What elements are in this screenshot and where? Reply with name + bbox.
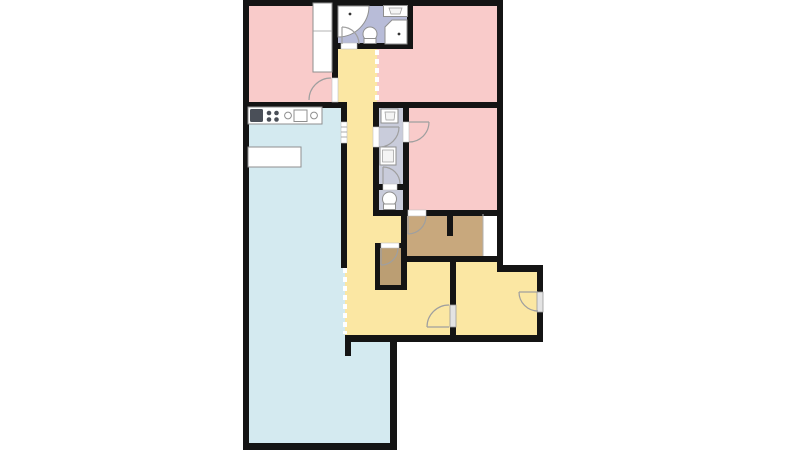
small-closet [378, 246, 403, 287]
wall-hallrooms-divider-a [450, 256, 456, 305]
hob-ring [285, 112, 292, 119]
hallway-top [335, 46, 377, 108]
wall-fin [345, 342, 351, 356]
burner [267, 117, 272, 122]
burner [267, 111, 272, 116]
wall-step-top [497, 265, 543, 272]
corner-shower [385, 20, 407, 44]
wall-closet-partition [447, 210, 453, 236]
kitchen-living-upper [246, 105, 345, 345]
floorplan-svg [0, 0, 800, 450]
hall-room-right-west [453, 260, 501, 342]
door-opening-bedroom [403, 122, 409, 142]
shower-drain-dot [398, 33, 401, 36]
door-opening-bathroom [341, 43, 357, 49]
wall-closet-left-column [401, 210, 407, 290]
bathtub-drain-dot [349, 13, 352, 16]
bathroom-toilet-tank [364, 39, 376, 44]
wall-kitchen-right-b [341, 143, 347, 268]
kitchen-table [248, 147, 301, 167]
wall-top [243, 0, 503, 6]
wall-living-right [390, 342, 397, 443]
door-opening-walk-in-closet [408, 210, 426, 216]
wall-bedroom-bottom-b [426, 210, 503, 216]
wall-bathroom-bottom-a [332, 43, 341, 49]
stove [250, 109, 263, 122]
wc-toilet-tank [384, 204, 396, 210]
wall-mid-right [373, 102, 503, 108]
wall-utility-left-a [373, 108, 379, 127]
wall-right-upper [497, 0, 503, 272]
wall-utility-wc-divider-b [397, 184, 409, 190]
door-opening-utility [373, 127, 379, 147]
burner [274, 117, 279, 122]
wardrobe [313, 3, 332, 72]
wall-small-closet-top-b [399, 243, 406, 248]
floorplan [0, 0, 800, 450]
wall-small-closet-bottom [375, 285, 406, 290]
door-opening-room-top-left [332, 78, 338, 102]
burner [274, 111, 279, 116]
door-slab-entrance [537, 292, 543, 312]
wall-bedroom-left-a [403, 108, 409, 122]
room-top-right-upper [410, 3, 500, 48]
wall-kitchen-right-a [341, 108, 347, 122]
wall-left [243, 0, 249, 450]
bedroom-right [406, 108, 498, 212]
wall-utility-left-b [373, 147, 379, 213]
wall-topleft-room-right [332, 0, 338, 78]
bathroom-sink-basin [389, 8, 402, 14]
hall-room-left [403, 260, 453, 342]
wall-bedroom-left-b [403, 142, 409, 213]
pass-through-kitchen [341, 122, 347, 143]
wall-right-lower-a [537, 272, 543, 292]
kitchen-living-lower [246, 340, 393, 447]
wall-bottom-left [243, 443, 397, 450]
walk-in-closet [403, 212, 483, 257]
wall-hallrooms-bottom [345, 335, 543, 342]
wall-small-closet-left [375, 243, 380, 290]
kitchen-sink [294, 110, 307, 122]
hob-ring [311, 112, 318, 119]
door-opening-wc [383, 184, 397, 190]
room-top-right-lower [377, 45, 500, 105]
utility-sink-basin [385, 112, 395, 120]
hallway-pocket [376, 216, 403, 246]
door-slab-hallrooms [450, 305, 456, 327]
pass-through-slab [341, 122, 347, 143]
door-opening-small-closet [381, 243, 399, 248]
hall-room-right-east [497, 268, 543, 342]
wall-utility-wc-divider-a [373, 184, 383, 190]
washing-machine-door [383, 150, 394, 162]
